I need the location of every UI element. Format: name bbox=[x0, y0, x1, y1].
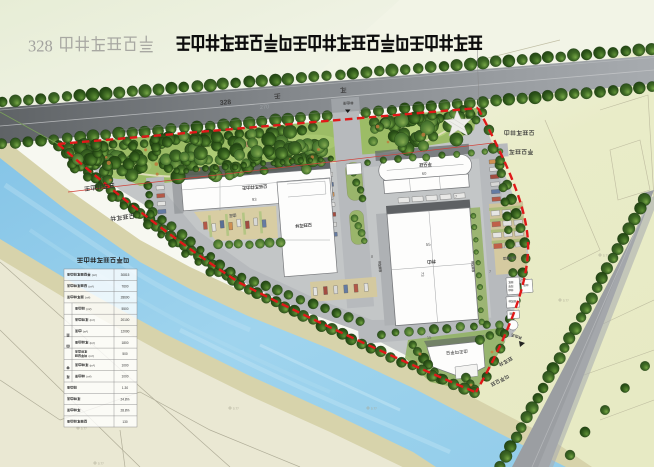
svg-text:28.8%: 28.8% bbox=[120, 409, 129, 413]
svg-text:1.30: 1.30 bbox=[122, 386, 128, 390]
svg-text:28600: 28600 bbox=[121, 296, 130, 300]
svg-text:270: 270 bbox=[260, 104, 270, 111]
svg-text:5.77: 5.77 bbox=[371, 407, 377, 411]
svg-text:(m²): (m²) bbox=[90, 363, 95, 367]
svg-text:12000: 12000 bbox=[121, 329, 130, 333]
svg-text:5.77: 5.77 bbox=[233, 407, 239, 411]
svg-text:328: 328 bbox=[220, 99, 232, 107]
svg-text:(m²): (m²) bbox=[86, 307, 91, 311]
svg-text:130: 130 bbox=[122, 420, 128, 424]
svg-text:(m²): (m²) bbox=[90, 318, 95, 322]
svg-text:30815: 30815 bbox=[121, 273, 130, 277]
svg-text:7600: 7600 bbox=[121, 284, 128, 288]
svg-text:5.77: 5.77 bbox=[563, 299, 569, 303]
svg-text:20100: 20100 bbox=[121, 318, 130, 322]
svg-text:(m²): (m²) bbox=[83, 329, 88, 333]
svg-text:5.77: 5.77 bbox=[98, 462, 104, 466]
svg-text:1000: 1000 bbox=[121, 375, 128, 379]
svg-text:(m²): (m²) bbox=[85, 296, 90, 300]
svg-text:328: 328 bbox=[28, 37, 53, 56]
svg-text:1000: 1000 bbox=[121, 363, 128, 367]
svg-text:(m²): (m²) bbox=[88, 284, 93, 288]
svg-text:500: 500 bbox=[122, 352, 128, 356]
svg-text:1800: 1800 bbox=[121, 341, 128, 345]
svg-text:(m²): (m²) bbox=[92, 273, 97, 277]
svg-text:(m²): (m²) bbox=[90, 341, 95, 345]
svg-text:(m²): (m²) bbox=[86, 375, 91, 379]
svg-text:5500: 5500 bbox=[121, 307, 128, 311]
svg-text:(m²): (m²) bbox=[89, 354, 94, 358]
svg-text:24.8%: 24.8% bbox=[120, 397, 129, 401]
